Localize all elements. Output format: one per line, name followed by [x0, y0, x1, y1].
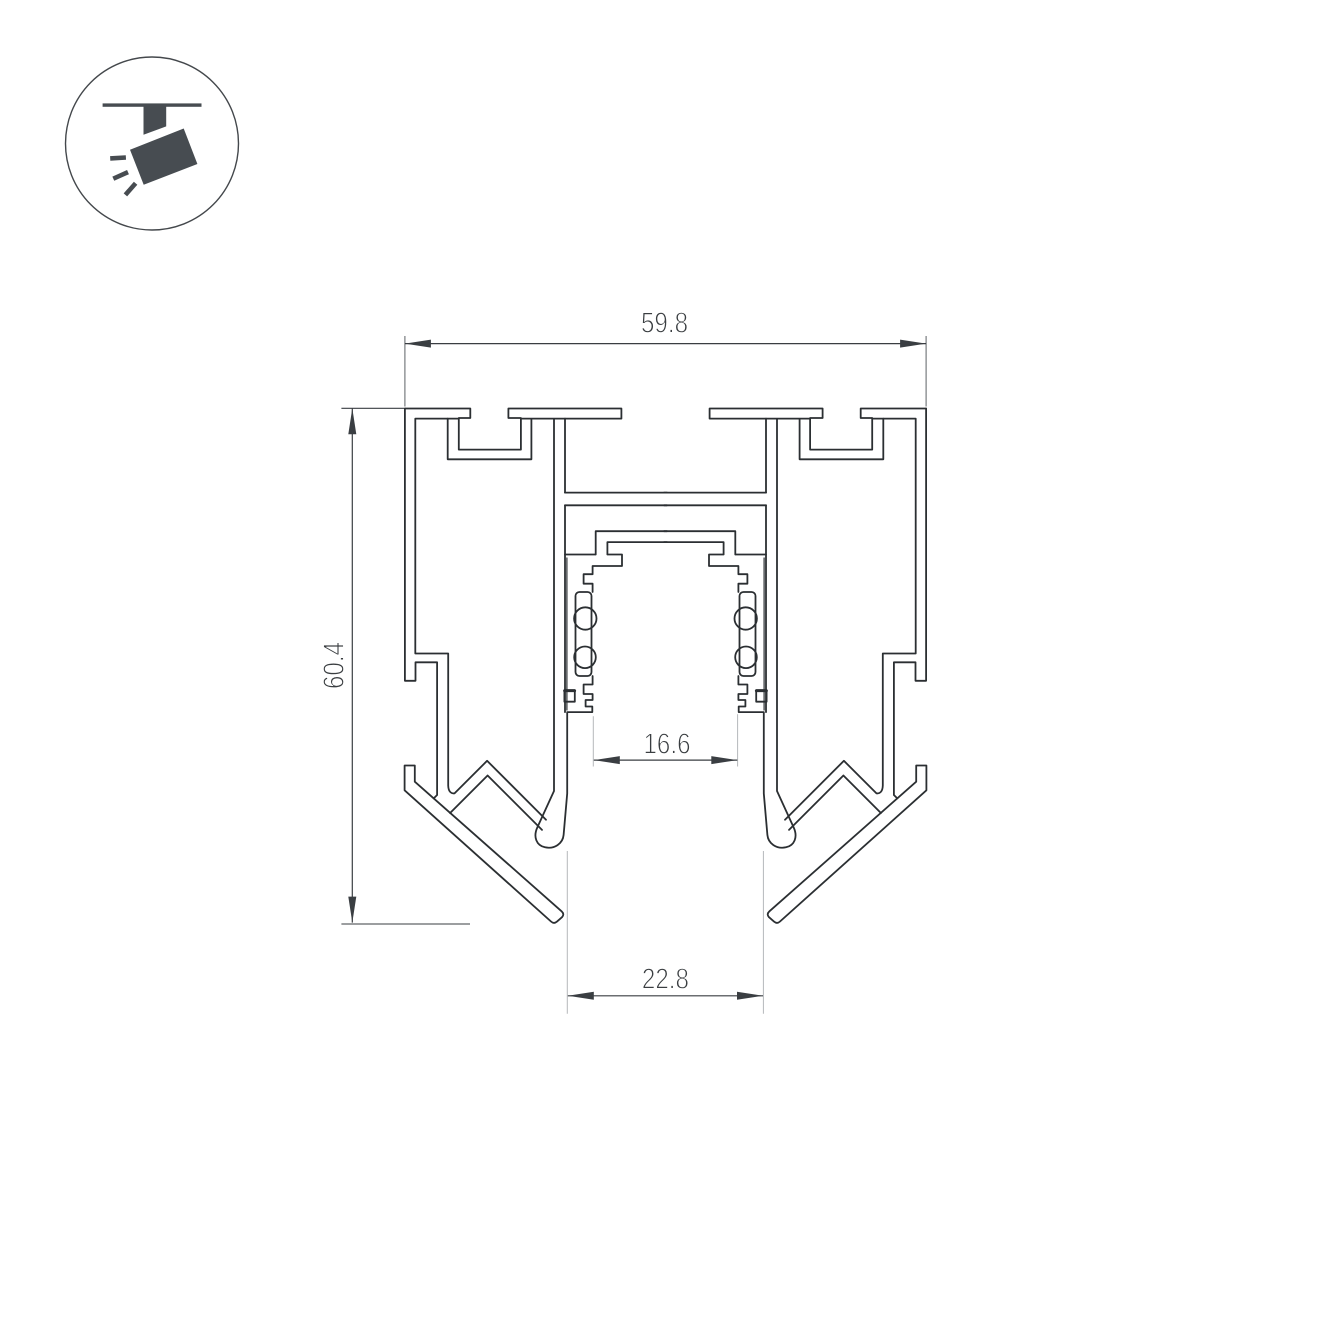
svg-text:60.4: 60.4: [318, 642, 350, 689]
svg-text:16.6: 16.6: [644, 728, 691, 760]
svg-text:59.8: 59.8: [641, 308, 688, 340]
svg-text:22.8: 22.8: [642, 963, 689, 995]
